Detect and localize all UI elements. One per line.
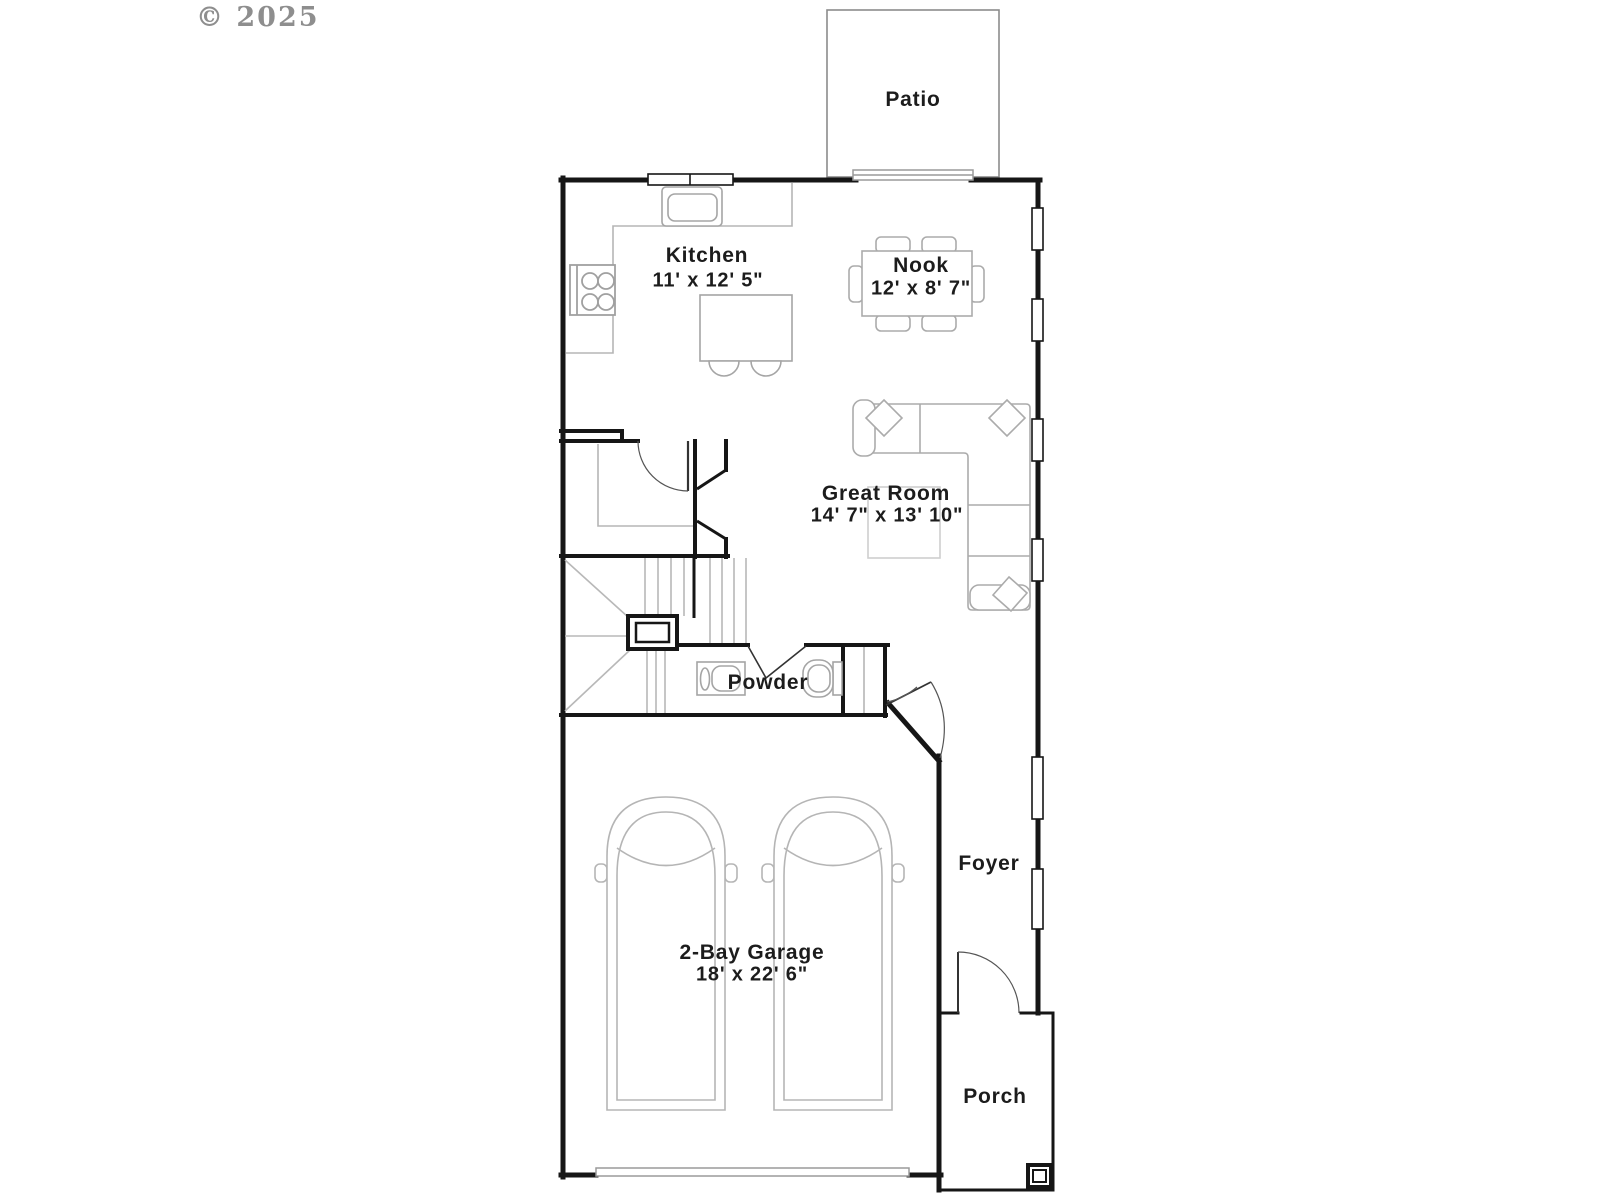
- room-label-great-room: Great Room: [822, 482, 950, 506]
- room-label-patio: Patio: [885, 88, 940, 112]
- room-label-powder: Powder: [728, 671, 809, 695]
- floor-plan-drawing: [0, 0, 1600, 1200]
- room-dims-garage: 18' x 22' 6": [696, 964, 808, 987]
- room-dims-kitchen: 11' x 12' 5": [653, 270, 764, 293]
- room-label-foyer: Foyer: [958, 852, 1019, 876]
- porch-column: [1028, 1165, 1051, 1187]
- stair-landing-box: [628, 616, 677, 649]
- room-label-nook: Nook: [893, 254, 949, 278]
- stair-niche-angles: [697, 470, 726, 539]
- garage-door: [596, 1168, 909, 1176]
- patio-sliding-door: [853, 170, 973, 180]
- room-dims-nook: 12' x 8' 7": [871, 278, 971, 301]
- room-label-porch: Porch: [963, 1085, 1027, 1109]
- stove-icon: [570, 265, 615, 315]
- closet-door: [638, 441, 688, 491]
- room-label-garage: 2-Bay Garage: [679, 941, 824, 965]
- kitchen-sink: [662, 187, 722, 226]
- kitchen-island: [700, 295, 792, 376]
- room-dims-great-room: 14' 7" x 13' 10": [811, 505, 964, 528]
- hall-to-foyer-door: [886, 682, 944, 758]
- room-label-kitchen: Kitchen: [666, 244, 749, 268]
- closet-interior: [598, 444, 693, 526]
- front-door: [958, 952, 1019, 1013]
- floor-plan-page: © 2025: [0, 0, 1600, 1200]
- toilet-icon: [803, 660, 842, 697]
- kitchen-window: [648, 174, 733, 185]
